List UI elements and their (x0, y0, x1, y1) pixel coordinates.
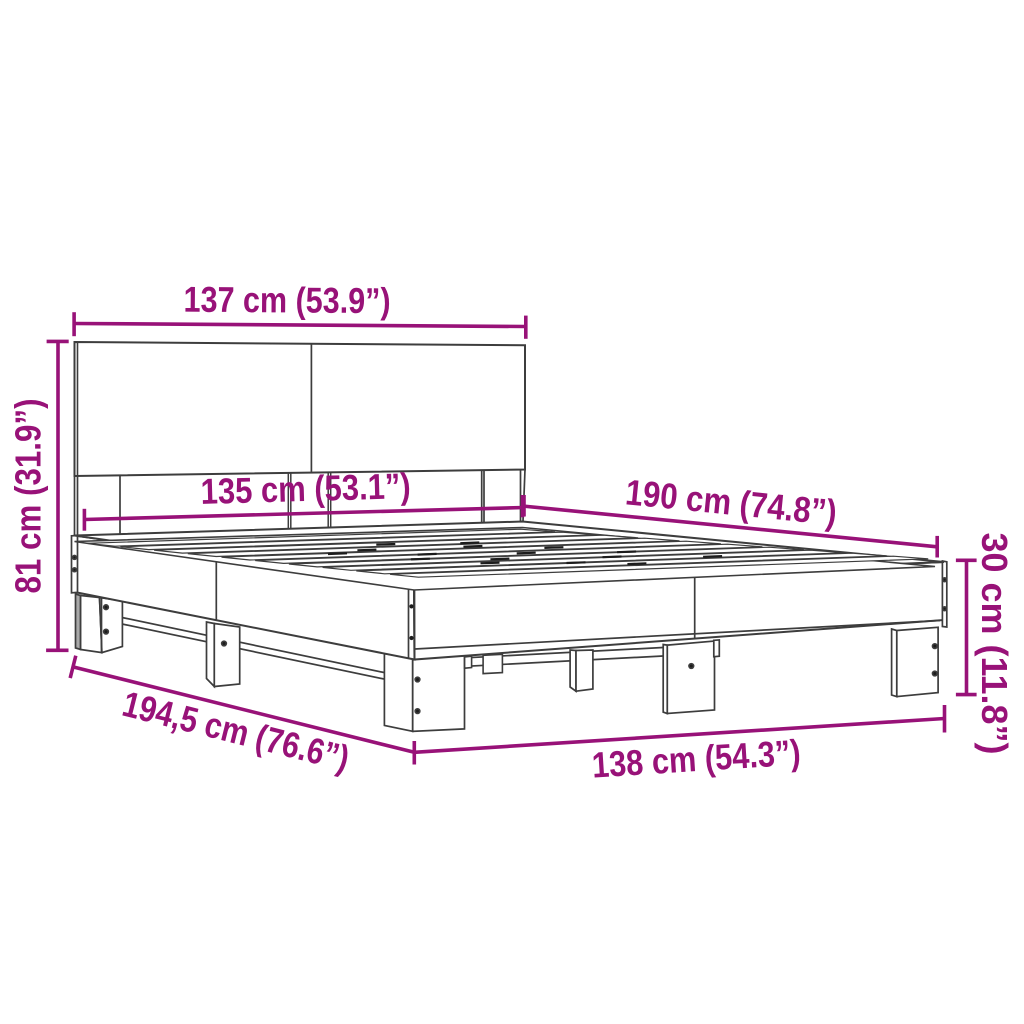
svg-text:30 cm (11.8”): 30 cm (11.8”) (974, 533, 1015, 755)
svg-text:137 cm (53.9”): 137 cm (53.9”) (183, 279, 390, 321)
svg-text:135 cm (53.1”): 135 cm (53.1”) (200, 465, 411, 512)
svg-text:81 cm (31.9”): 81 cm (31.9”) (8, 399, 49, 594)
